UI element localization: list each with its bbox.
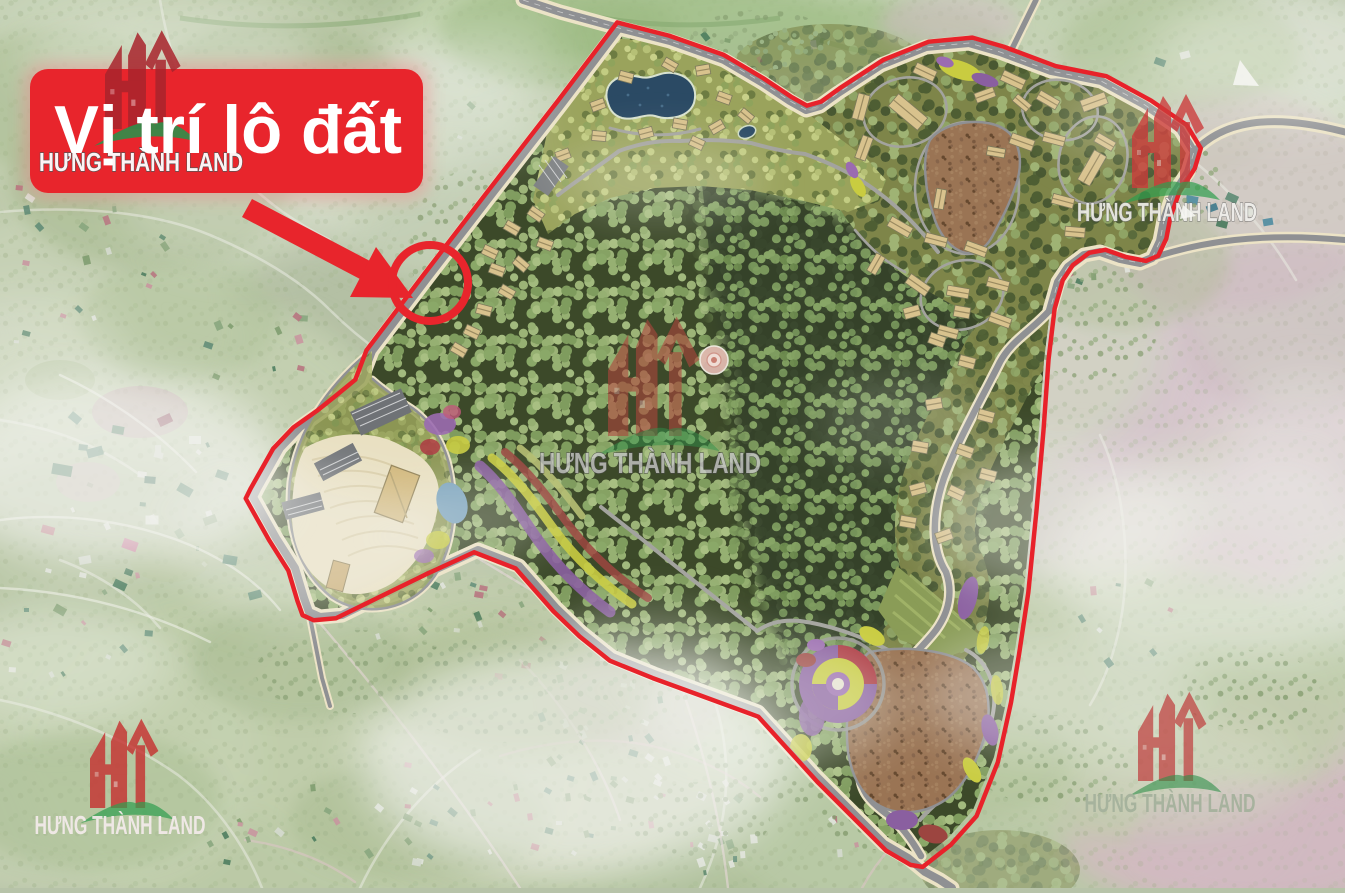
svg-text:HƯNG THÀNH LAND: HƯNG THÀNH LAND xyxy=(35,810,206,840)
svg-text:HƯNG THÀNH LAND: HƯNG THÀNH LAND xyxy=(1077,197,1257,227)
svg-text:HƯNG THÀNH LAND: HƯNG THÀNH LAND xyxy=(539,446,761,480)
svg-text:Vị trí lô đất: Vị trí lô đất xyxy=(54,92,402,168)
svg-text:HƯNG THÀNH LAND: HƯNG THÀNH LAND xyxy=(1085,788,1256,818)
